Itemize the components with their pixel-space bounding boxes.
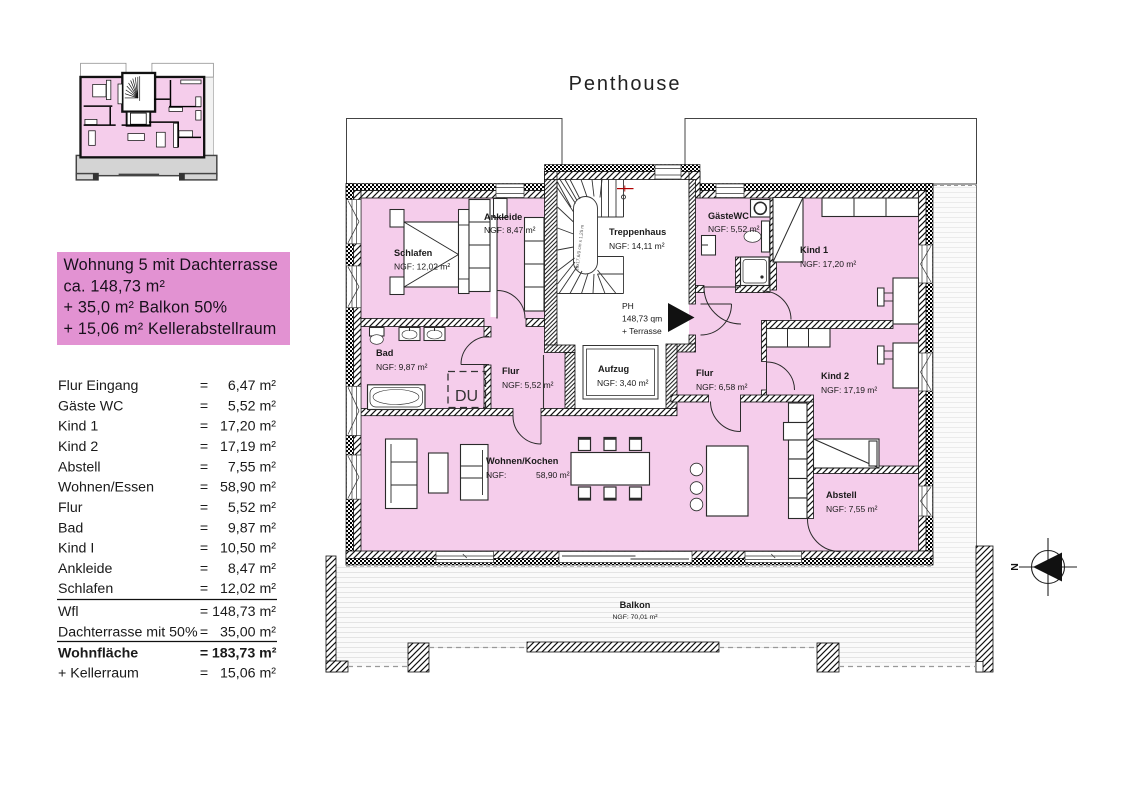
svg-text:DU: DU <box>455 388 478 405</box>
svg-text:NGF: 14,11 m²: NGF: 14,11 m² <box>609 241 665 251</box>
svg-text:=: = <box>200 541 208 557</box>
svg-text:=: = <box>200 666 208 682</box>
svg-text:Ankleide: Ankleide <box>58 561 113 577</box>
svg-text:183,73 m²: 183,73 m² <box>212 646 277 662</box>
svg-text:Wohnung 5 mit Dachterrasse: Wohnung 5 mit Dachterrasse <box>64 256 279 274</box>
svg-text:ca. 148,73 m²: ca. 148,73 m² <box>64 277 166 295</box>
svg-text:Kind 2: Kind 2 <box>58 439 98 455</box>
svg-text:15,06 m²: 15,06 m² <box>220 666 276 682</box>
svg-text:Flur: Flur <box>58 500 83 516</box>
svg-text:NGF: 5,52 m²: NGF: 5,52 m² <box>502 380 554 390</box>
svg-text:GästeWC: GästeWC <box>708 211 749 221</box>
svg-text:Kind 1: Kind 1 <box>58 419 98 435</box>
svg-text:Kind 1: Kind 1 <box>800 245 828 255</box>
svg-text:NGF: 8,47 m²: NGF: 8,47 m² <box>484 225 536 235</box>
svg-text:+ 15,06 m² Kellerabstellraum: + 15,06 m² Kellerabstellraum <box>64 320 277 338</box>
svg-text:7,55 m²: 7,55 m² <box>228 459 276 475</box>
svg-text:6,47 m²: 6,47 m² <box>228 378 276 394</box>
svg-text:=: = <box>200 581 208 597</box>
svg-text:Schlafen: Schlafen <box>394 248 433 258</box>
svg-text:NGF:: NGF: <box>486 470 506 480</box>
svg-text:Kind 2: Kind 2 <box>821 371 849 381</box>
svg-text:NGF: 17,19 m²: NGF: 17,19 m² <box>821 385 877 395</box>
svg-text:+ Kellerraum: + Kellerraum <box>58 666 139 682</box>
svg-text:Flur: Flur <box>502 366 520 376</box>
svg-text:Treppenhaus: Treppenhaus <box>609 227 666 237</box>
svg-text:148,73 m²: 148,73 m² <box>212 604 276 620</box>
svg-text:=: = <box>200 604 208 620</box>
svg-text:Wfl: Wfl <box>58 604 79 620</box>
svg-text:NGF: 5,52 m²: NGF: 5,52 m² <box>708 224 760 234</box>
svg-text:17,20 m²: 17,20 m² <box>220 419 276 435</box>
svg-text:Wohnen/Essen: Wohnen/Essen <box>58 480 154 496</box>
svg-text:NGF: 9,87 m²: NGF: 9,87 m² <box>376 362 428 372</box>
svg-text:=: = <box>200 561 208 577</box>
svg-text:58,90 m²: 58,90 m² <box>536 470 570 480</box>
svg-text:Dachterrasse mit 50%: Dachterrasse mit 50% <box>58 625 198 641</box>
svg-text:=: = <box>200 520 208 536</box>
svg-text:Bad: Bad <box>376 348 393 358</box>
svg-text:35,00 m²: 35,00 m² <box>220 625 276 641</box>
svg-text:Kind I: Kind I <box>58 541 94 557</box>
svg-text:Abstell: Abstell <box>58 459 101 475</box>
svg-text:8,47 m²: 8,47 m² <box>228 561 276 577</box>
svg-text:Aufzug: Aufzug <box>598 364 629 374</box>
svg-text:Flur: Flur <box>696 368 714 378</box>
svg-text:NGF: 6,58 m²: NGF: 6,58 m² <box>696 382 748 392</box>
svg-text:17,19 m²: 17,19 m² <box>220 439 276 455</box>
svg-text:Gäste WC: Gäste WC <box>58 398 123 414</box>
svg-text:9,87 m²: 9,87 m² <box>228 520 276 536</box>
svg-text:58,90 m²: 58,90 m² <box>220 480 276 496</box>
svg-text:=: = <box>200 625 208 641</box>
svg-text:Abstell: Abstell <box>826 490 857 500</box>
svg-text:Wohnen/Kochen: Wohnen/Kochen <box>486 456 559 466</box>
svg-text:=: = <box>200 646 208 662</box>
svg-text:=: = <box>200 398 208 414</box>
svg-text:NGF: 12,02 m²: NGF: 12,02 m² <box>394 262 450 272</box>
svg-text:NGF: 70,01 m²: NGF: 70,01 m² <box>613 614 659 621</box>
svg-text:N: N <box>1009 563 1021 571</box>
svg-text:Penthouse: Penthouse <box>569 73 682 95</box>
svg-text:NGF: 3,40 m²: NGF: 3,40 m² <box>597 378 649 388</box>
svg-text:PH: PH <box>622 301 634 311</box>
svg-text:=: = <box>200 480 208 496</box>
svg-text:=: = <box>200 419 208 435</box>
svg-text:Wohnfläche: Wohnfläche <box>58 646 138 662</box>
svg-text:Flur Eingang: Flur Eingang <box>58 378 138 394</box>
svg-text:=: = <box>200 439 208 455</box>
svg-text:NGF: 17,20 m²: NGF: 17,20 m² <box>800 259 856 269</box>
svg-text:Schlafen: Schlafen <box>58 581 113 597</box>
svg-text:+ Terrasse: + Terrasse <box>622 326 662 336</box>
svg-text:Ankleide: Ankleide <box>484 212 522 222</box>
svg-text:+ 35,0 m² Balkon 50%: + 35,0 m² Balkon 50% <box>64 299 228 317</box>
svg-text:5,52 m²: 5,52 m² <box>228 398 276 414</box>
svg-text:10,50 m²: 10,50 m² <box>220 541 276 557</box>
svg-text:=: = <box>200 500 208 516</box>
svg-text:Bad: Bad <box>58 520 83 536</box>
svg-text:NGF: 7,55 m²: NGF: 7,55 m² <box>826 504 878 514</box>
svg-text:5,52 m²: 5,52 m² <box>228 500 276 516</box>
svg-text:Balkon: Balkon <box>620 600 651 610</box>
svg-text:148,73 qm: 148,73 qm <box>622 314 662 324</box>
svg-text:=: = <box>200 378 208 394</box>
svg-text:12,02 m²: 12,02 m² <box>220 581 276 597</box>
svg-text:=: = <box>200 459 208 475</box>
